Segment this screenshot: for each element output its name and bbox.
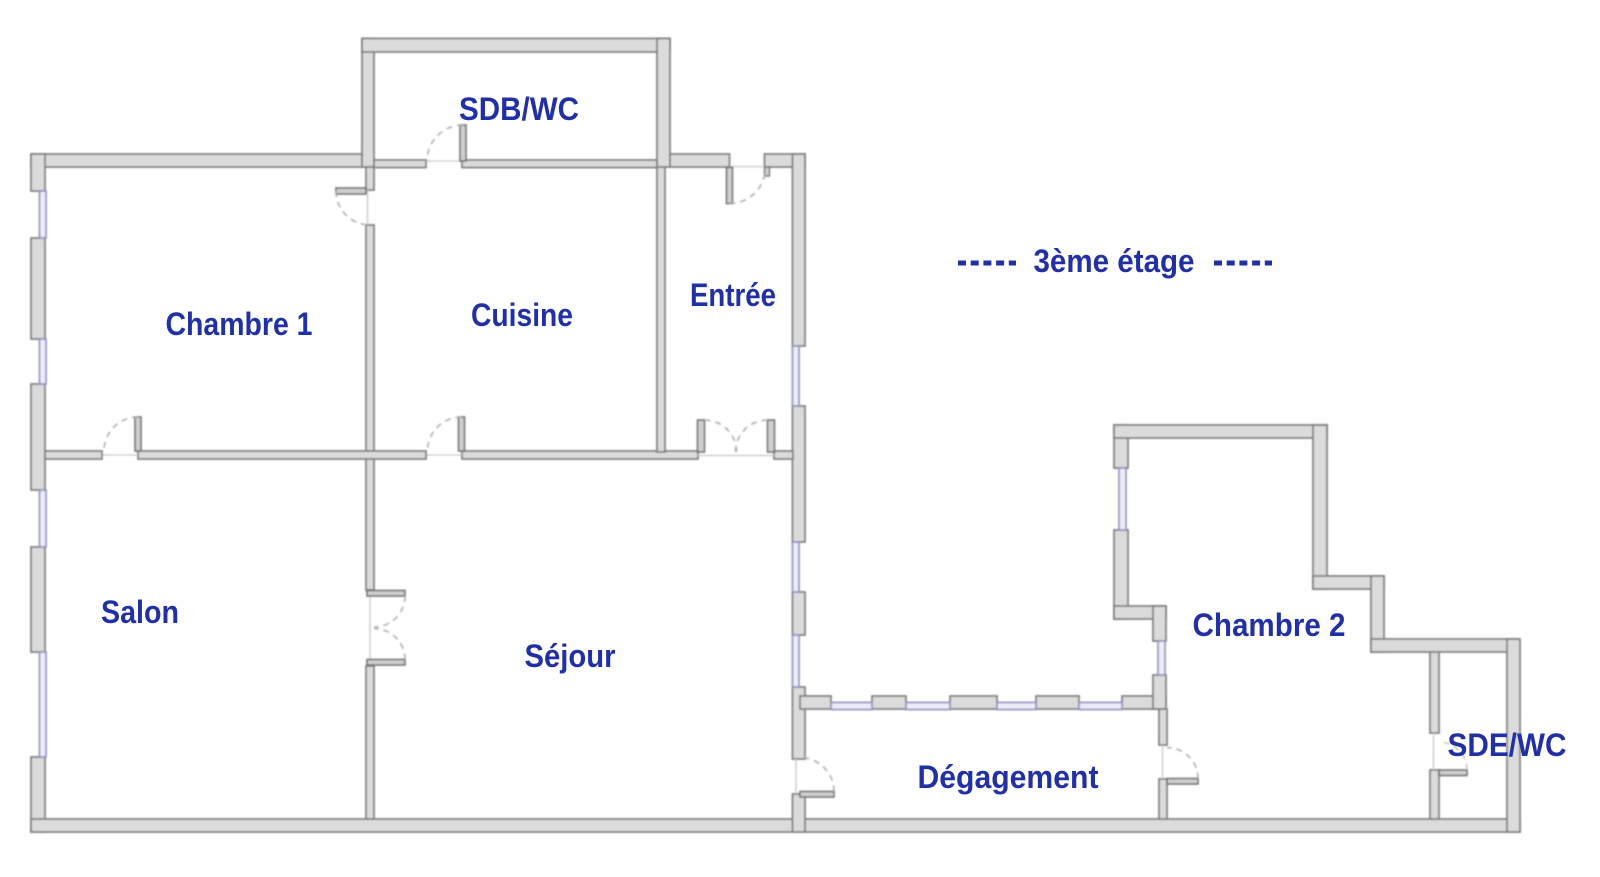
- svg-text:Dégagement: Dégagement: [918, 759, 1099, 795]
- svg-text:3ème étage: 3ème étage: [1034, 243, 1195, 279]
- svg-text:Chambre 1: Chambre 1: [166, 306, 313, 342]
- svg-text:SDB/WC: SDB/WC: [459, 91, 579, 127]
- svg-text:Séjour: Séjour: [525, 638, 616, 674]
- svg-text:Cuisine: Cuisine: [471, 297, 573, 333]
- svg-text:Salon: Salon: [101, 594, 179, 630]
- svg-text:Chambre 2: Chambre 2: [1193, 607, 1346, 643]
- svg-text:Entrée: Entrée: [690, 277, 776, 313]
- svg-text:SDE/WC: SDE/WC: [1448, 727, 1567, 763]
